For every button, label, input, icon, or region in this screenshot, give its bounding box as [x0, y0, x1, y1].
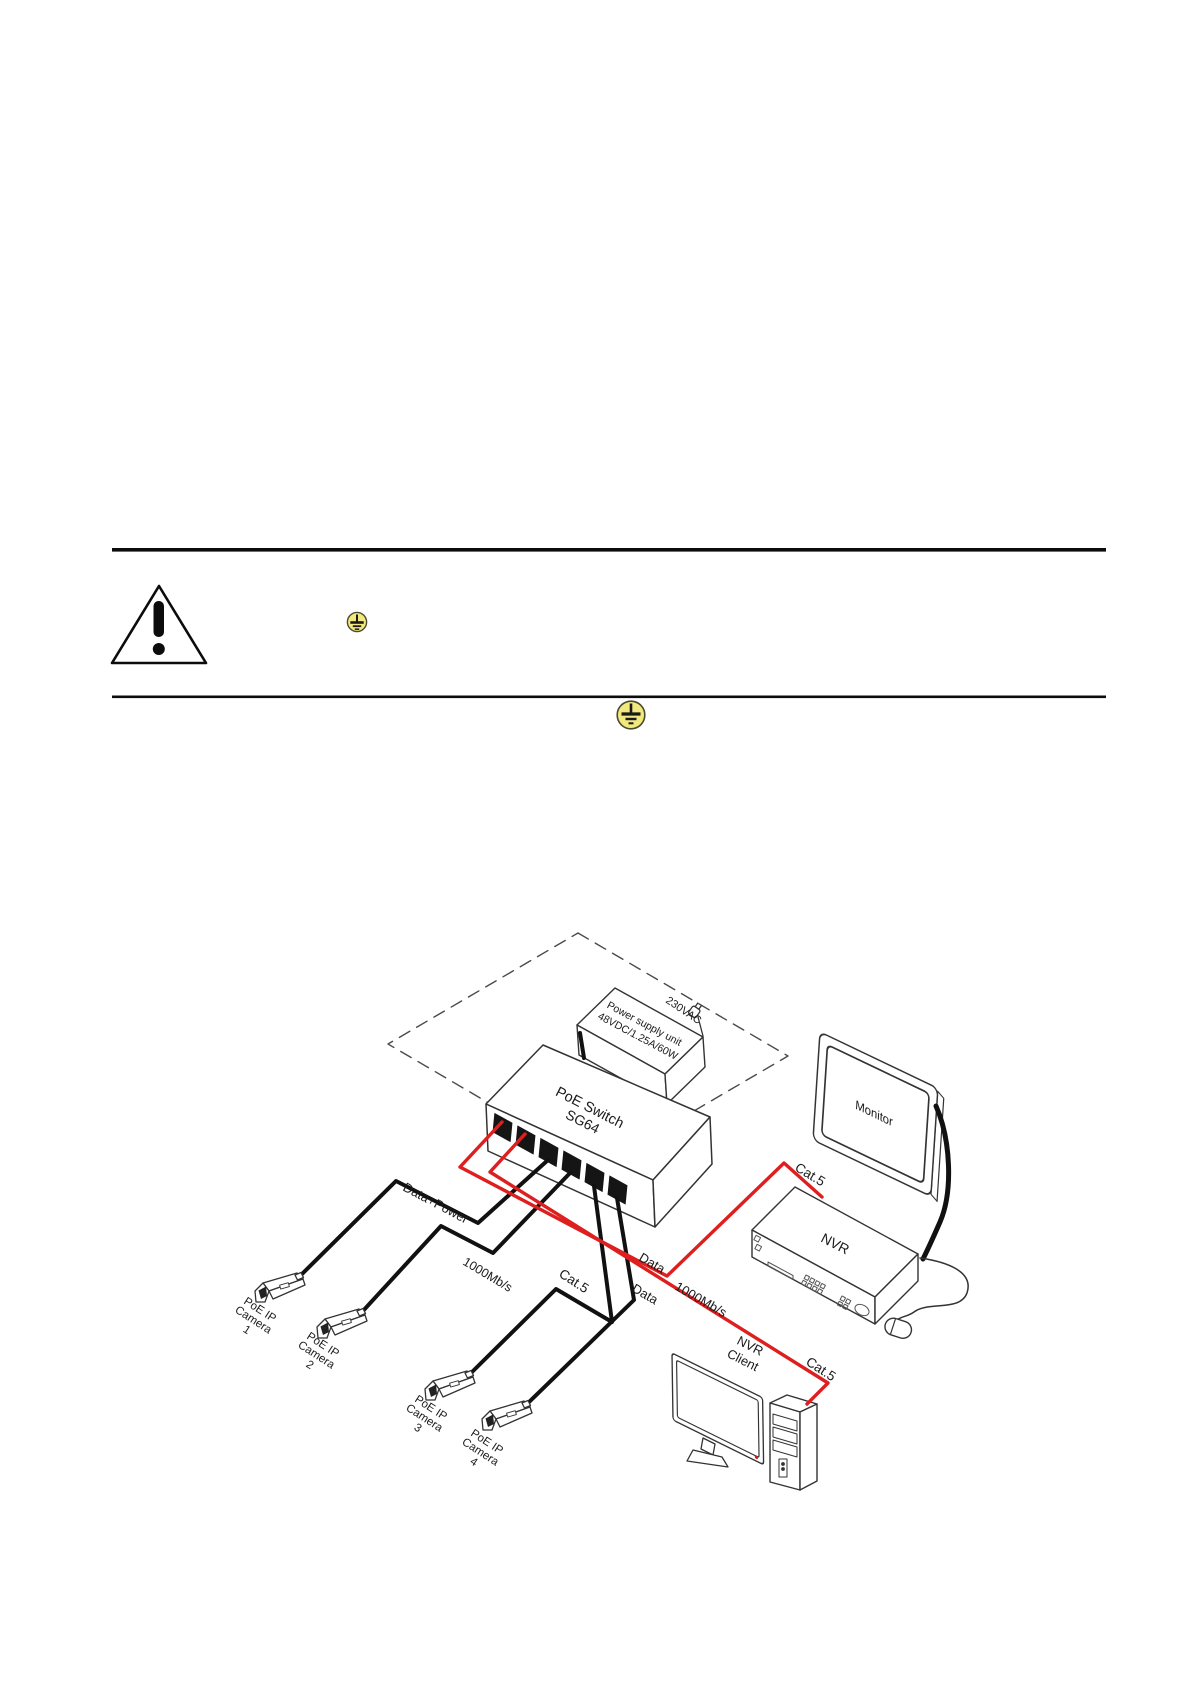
cable-camera-2: [362, 1172, 571, 1312]
camera-1-label: PoE IP Camera 1: [226, 1294, 280, 1347]
camera-2-label-line3: 2: [304, 1359, 316, 1373]
label-1000mbs-black: 1000Mb/s: [460, 1255, 514, 1295]
warning-triangle-icon: [112, 586, 206, 663]
network-diagram: Power supply unit 48VDC/1.25A/60W 230VAC…: [226, 933, 968, 1490]
poe-camera-4: [482, 1401, 532, 1431]
camera-2-label: PoE IP Camera 2: [289, 1329, 343, 1382]
manual-page: Power supply unit 48VDC/1.25A/60W 230VAC…: [0, 0, 1192, 1685]
camera-3-label: PoE IP Camera 3: [397, 1392, 451, 1445]
label-data-power: Data+Power: [401, 1179, 472, 1226]
camera-4-label: PoE IP Camera 4: [453, 1426, 507, 1479]
rule-bottom: [112, 696, 1106, 699]
cable-camera-1: [300, 1160, 548, 1276]
ground-icon-large: [617, 701, 645, 729]
label-data-client: Data: [630, 1281, 662, 1308]
label-1000mbs-red: 1000Mb/s: [673, 1279, 730, 1321]
ground-icon-small: [347, 612, 366, 631]
nvr-box: [752, 1187, 918, 1324]
poe-camera-2: [317, 1309, 367, 1339]
poe-camera-1: [255, 1273, 305, 1303]
client-tower: [770, 1395, 817, 1490]
poe-camera-3: [425, 1371, 475, 1401]
monitor: Monitor: [813, 1032, 944, 1201]
camera-1-label-line3: 1: [241, 1324, 253, 1338]
client-label: NVR Client: [725, 1332, 769, 1375]
mouse: [883, 1316, 914, 1341]
camera-4-label-line3: 4: [468, 1456, 480, 1470]
page-canvas: Power supply unit 48VDC/1.25A/60W 230VAC…: [0, 0, 1192, 1685]
rule-top: [112, 548, 1106, 552]
camera-3-label-line3: 3: [412, 1422, 424, 1436]
